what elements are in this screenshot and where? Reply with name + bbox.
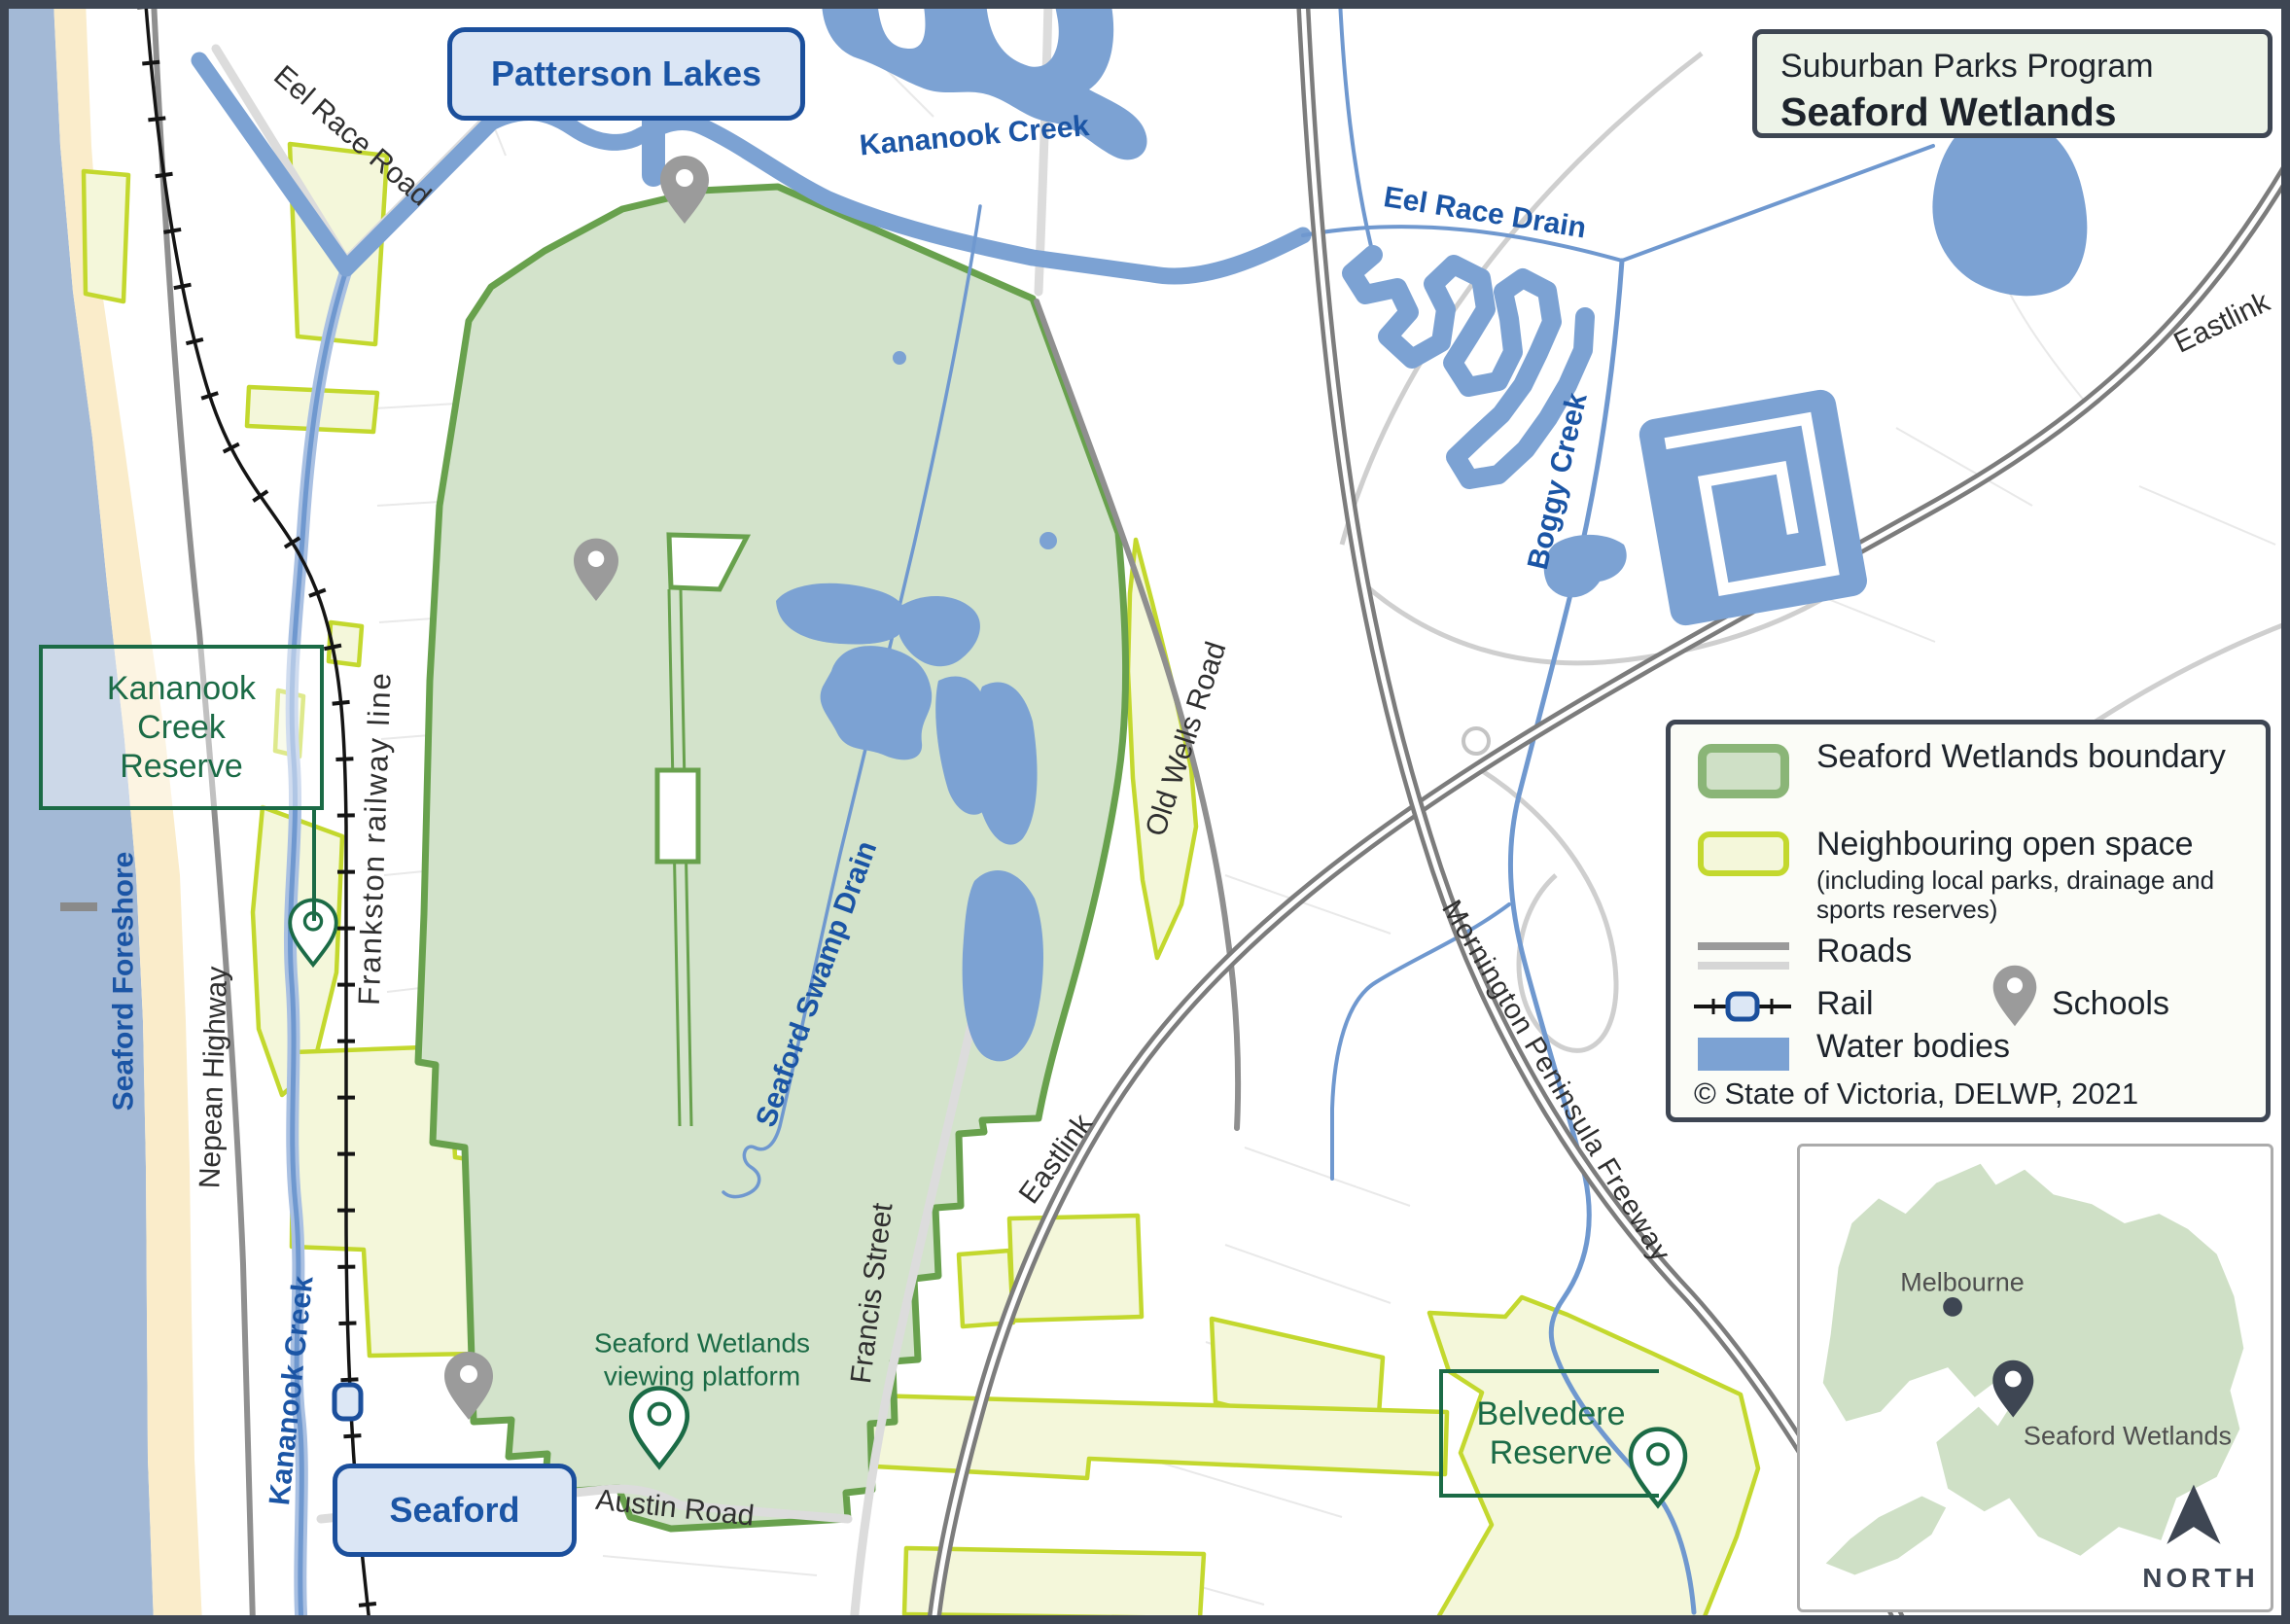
legend-label-open-space: Neighbouring open space <box>1816 826 2264 863</box>
inset-peninsula-shape <box>1826 1496 1946 1574</box>
legend-swatch-road-minor <box>1698 962 1789 970</box>
inset-melbourne-dot <box>1943 1297 1962 1317</box>
belvedere-reserve-label: Belvedere Reserve <box>1454 1395 1648 1472</box>
inset-site-label: Seaford Wetlands <box>2024 1422 2232 1452</box>
legend: Seaford Wetlands boundary Neighbouring o… <box>1666 720 2271 1122</box>
legend-note-open-space: (including local parks, drainage and spo… <box>1816 866 2264 925</box>
inset-region-shape <box>1823 1164 2244 1556</box>
title-box: Suburban Parks Program Seaford Wetlands <box>1752 29 2272 138</box>
town-box-seaford: Seaford <box>333 1464 577 1557</box>
legend-school-icon <box>1988 964 2042 1028</box>
station-marker <box>335 1385 361 1419</box>
legend-swatch-wetland <box>1698 744 1789 798</box>
belvedere-reserve-box: Belvedere Reserve <box>1439 1369 1659 1498</box>
seaford-label: Seaford <box>389 1490 519 1531</box>
kananook-creek-reserve-box: Kananook Creek Reserve <box>39 645 324 810</box>
legend-label-wetland: Seaford Wetlands boundary <box>1816 738 2235 775</box>
kananook-callout-line <box>312 806 316 921</box>
inset-canvas <box>1800 1147 2271 1609</box>
legend-swatch-road-major <box>1698 942 1789 950</box>
inset-map: Melbourne Seaford Wetlands NORTH <box>1797 1144 2273 1612</box>
maze-basin <box>1637 387 1869 627</box>
roundabout <box>1463 728 1489 754</box>
viewing-platform-label: Seaford Wetlands viewing platform <box>556 1326 848 1392</box>
inset-melbourne-label: Melbourne <box>1900 1268 2025 1298</box>
legend-label-roads: Roads <box>1816 933 1912 970</box>
patterson-lakes-label: Patterson Lakes <box>491 53 761 94</box>
program-title: Suburban Parks Program <box>1780 48 2268 86</box>
page-title: Seaford Wetlands <box>1780 89 2268 135</box>
legend-swatch-open-space <box>1698 831 1789 876</box>
wetland-notch-parcel <box>657 770 698 862</box>
wetland-lake-6 <box>963 870 1043 1061</box>
town-box-patterson-lakes: Patterson Lakes <box>447 27 805 121</box>
kananook-creek-reserve-label: Kananook Creek Reserve <box>80 669 284 786</box>
map-page: Patterson Lakes Seaford Kananook Creek R… <box>0 0 2290 1624</box>
legend-label-schools: Schools <box>2052 985 2169 1022</box>
legend-label-water: Water bodies <box>1816 1028 2010 1065</box>
legend-copyright: © State of Victoria, DELWP, 2021 <box>1694 1077 2138 1112</box>
seaford-foreshore-label: Seaford Foreshore <box>108 852 139 1112</box>
beach-groyne <box>60 902 97 911</box>
large-pond-northeast <box>1932 114 2087 296</box>
legend-swatch-water <box>1698 1038 1789 1071</box>
legend-label-rail: Rail <box>1816 985 1874 1022</box>
legend-rail-icon <box>1692 989 1793 1024</box>
inset-north-label: NORTH <box>2142 1563 2259 1594</box>
